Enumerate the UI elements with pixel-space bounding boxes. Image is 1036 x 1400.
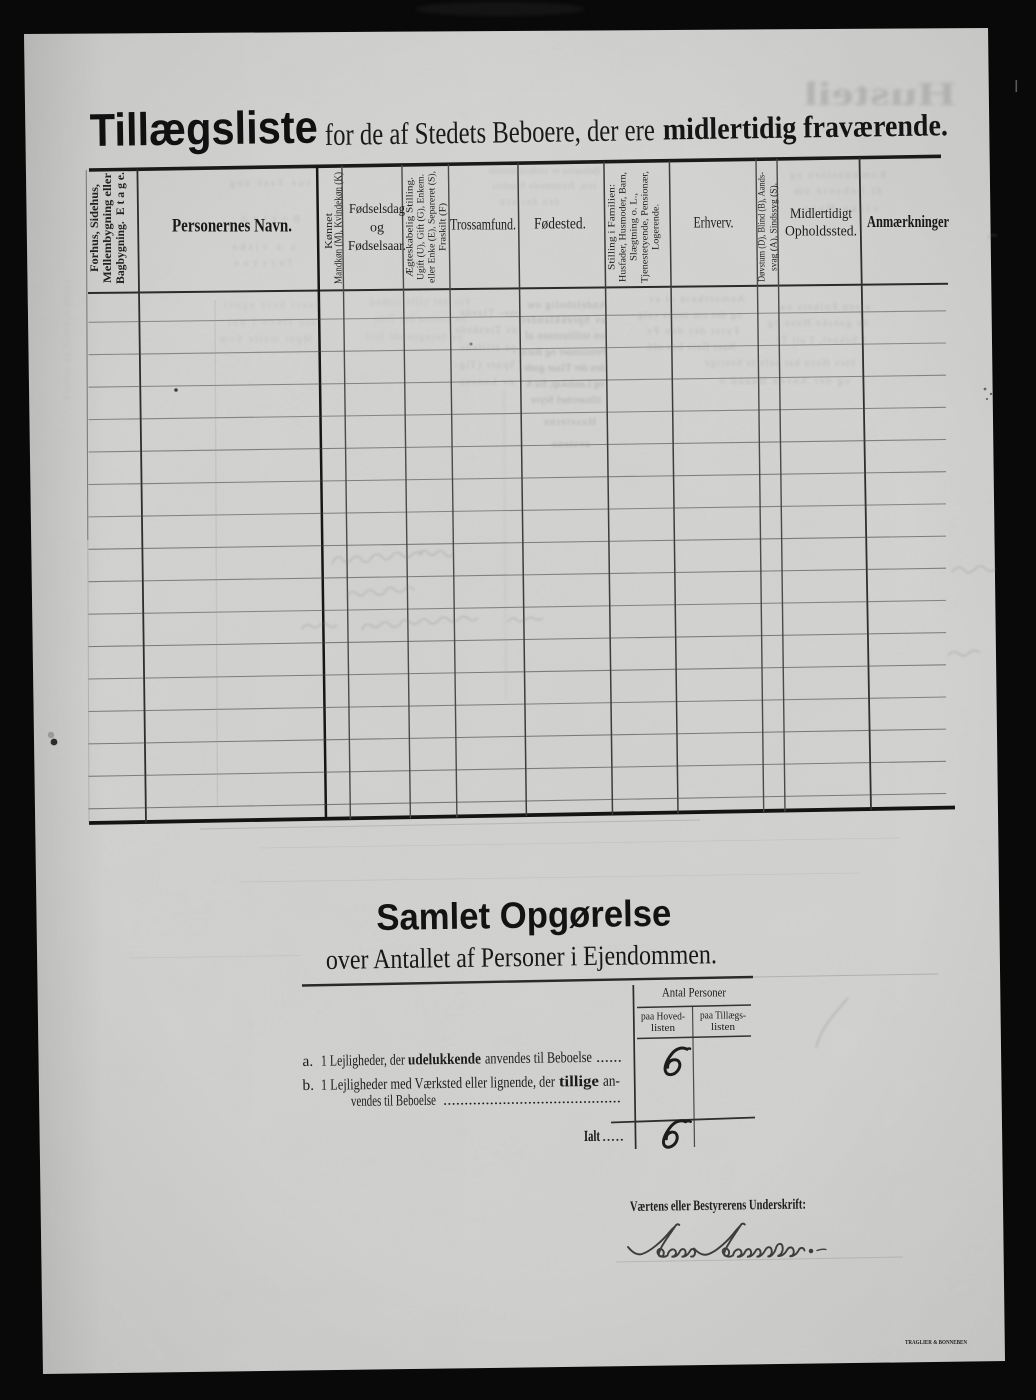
svg-text:svag (A), Sindssyg (S).: svag (A), Sindssyg (S). — [769, 183, 780, 271]
svg-text:too, fremmede Huslist: too, fremmede Huslist — [492, 181, 596, 192]
svg-text:Forhus og Sidehus ellers: Forhus og Sidehus ellers — [62, 280, 73, 400]
svg-text:ev Laness: ev Laness — [460, 377, 514, 388]
svg-text:Trossamfund.: Trossamfund. — [450, 217, 516, 234]
svg-text:av Sprekklandet: av Sprekklandet — [522, 315, 606, 326]
svg-text:listen: listen — [711, 1021, 735, 1033]
svg-text:Fødested.: Fødested. — [534, 216, 586, 233]
svg-text:Pensionaer og Barn: Pensionaer og Barn — [520, 347, 607, 358]
svg-text:Tillægsliste: Tillægsliste — [89, 101, 318, 156]
svg-text:a.: a. — [302, 1053, 313, 1070]
svg-text:midlertidig fraværende.: midlertidig fraværende. — [663, 107, 948, 146]
svg-text:.....: ..... — [602, 1127, 624, 1144]
svg-text:elsen Folkets ow: elsen Folkets ow — [778, 302, 870, 313]
svg-text:For det ville romed: For det ville romed — [370, 297, 470, 308]
svg-text:Samlet Opgørelse: Samlet Opgørelse — [376, 893, 672, 938]
svg-text:Ialt: Ialt — [584, 1128, 601, 1145]
svg-text:Tjenestetyende, Pensionær,: Tjenestetyende, Pensionær, — [641, 171, 651, 283]
svg-text:TRAGLIER & BONNEBEN: TRAGLIER & BONNEBEN — [905, 1339, 967, 1346]
svg-text:Bagbygning. E t a g e.: Bagbygning. E t a g e. — [115, 172, 127, 284]
svg-text:sto lieve i ent: sto lieve i ent — [228, 317, 316, 328]
svg-text:paa Tillægs-: paa Tillægs- — [700, 1010, 746, 1022]
svg-text:Mper melle Som: Mper melle Som — [220, 334, 312, 345]
svg-text:Mellembygning eller: Mellembygning eller — [102, 173, 114, 283]
svg-text:paa Hoved-: paa Hoved- — [641, 1011, 685, 1023]
svg-text:Antal Personer: Antal Personer — [662, 986, 727, 1000]
svg-text:Erhverv.: Erhverv. — [694, 215, 734, 232]
svg-text:pe stillede: pe stillede — [460, 343, 516, 354]
svg-text:on stillinstnen af: on stillinstnen af — [525, 331, 606, 342]
svg-text:Naer flere bos old: Naer flere bos old — [647, 342, 736, 353]
svg-text:Logerende.: Logerende. — [652, 204, 662, 250]
svg-text:1 Lejligheder, der: 1 Lejligheder, der — [321, 1052, 406, 1070]
svg-text:den der ern: den der ern — [500, 197, 560, 208]
svg-text:Spaer (Tig-: Spaer (Tig- — [455, 360, 516, 371]
svg-text:de ganske Huse og: de ganske Huse og — [767, 318, 868, 329]
svg-text:Værtens eller Bestyrerens Unde: Værtens eller Bestyrerens Underskrift: — [630, 1197, 806, 1215]
svg-text:og Landskap, fra A: og Landskap, fra A — [526, 379, 604, 390]
svg-text:anvendes til Beboelse: anvendes til Beboelse — [485, 1049, 592, 1067]
svg-text:Fødselsdag: Fødselsdag — [349, 202, 405, 217]
svg-text:og: og — [370, 221, 384, 236]
svg-text:Døvstum (D), Blind (B), Aands-: Døvstum (D), Blind (B), Aands- — [757, 172, 768, 282]
svg-text:og det om deres valg: og det om deres valg — [637, 310, 742, 321]
svg-text:eller Enke (E), Separeret (S),: eller Enke (E), Separeret (S), — [427, 171, 438, 283]
svg-text:Huseierne: Huseierne — [544, 417, 596, 428]
svg-text:..............................: ........................................… — [443, 1089, 621, 1108]
svg-text:Slægtning o. L.,: Slægtning o. L., — [630, 193, 640, 261]
svg-text:o a viske: o a viske — [231, 242, 296, 253]
svg-text:......: ...... — [596, 1049, 622, 1066]
svg-text:over Antallet af Personer i Ej: over Antallet af Personer i Ejendommen. — [326, 939, 717, 976]
svg-text:Ugift (U), Gift (G), Enkem.: Ugift (U), Gift (G), Enkem. — [416, 174, 427, 280]
svg-text:og der Anven Haand o: og der Anven Haand o — [720, 376, 850, 387]
svg-text:udelukkende: udelukkende — [408, 1051, 481, 1069]
svg-text:b.: b. — [302, 1077, 314, 1094]
svg-text:Husfader, Husmoder, Barn,: Husfader, Husmoder, Barn, — [618, 172, 629, 282]
svg-text:Opholdssted.: Opholdssted. — [785, 224, 857, 240]
svg-text:av Treskede: av Treskede — [455, 325, 517, 336]
svg-text:Stilling i Familien:: Stilling i Familien: — [608, 184, 618, 270]
svg-text:Beboelse er vedkommende: Beboelse er vedkommende — [487, 166, 600, 177]
svg-text:Anmærkninger: Anmærkninger — [867, 212, 949, 231]
svg-text:Husteil: Husteil — [804, 76, 956, 113]
svg-text:i Soknet, I alt Te: i Soknet, I alt Te — [776, 335, 866, 346]
svg-text:dt Beboere om: dt Beboere om — [794, 186, 882, 197]
svg-text:Fraskilt (F): Fraskilt (F) — [438, 203, 449, 251]
svg-text:Andelsbolig ow: Andelsbolig ow — [527, 300, 607, 311]
svg-text:tilnaermel Styre: tilnaermel Styre — [531, 395, 601, 406]
svg-text:for de af Stedets Beboere, der: for de af Stedets Beboere, der ere — [325, 112, 655, 152]
svg-text:listen: listen — [651, 1022, 675, 1034]
svg-text:vendes til Beboelse: vendes til Beboelse — [351, 1092, 436, 1110]
svg-text:be vaerne for Tros: be vaerne for Tros — [374, 314, 466, 325]
svg-text:Fødselsaar.: Fødselsaar. — [348, 239, 406, 254]
svg-text:an-: an- — [603, 1073, 620, 1090]
svg-text:Ægteskabelig Stilling.: Ægteskabelig Stilling. — [406, 177, 416, 277]
svg-text:me- Tlaede: me- Tlaede — [460, 308, 518, 319]
svg-text:avstene: avstene — [552, 439, 590, 450]
svg-text:tillige: tillige — [559, 1073, 599, 1091]
svg-text:den der Tlaae gode: den der Tlaae gode — [524, 363, 606, 374]
svg-text:Forhus, Sidehus,: Forhus, Sidehus, — [89, 184, 101, 272]
svg-text:Mandkøn (M), Kvindekøn (K): Mandkøn (M), Kvindekøn (K) — [334, 172, 345, 284]
svg-text:blev Havn har velv is Sverige: blev Havn har velv is Sverige — [705, 358, 855, 369]
